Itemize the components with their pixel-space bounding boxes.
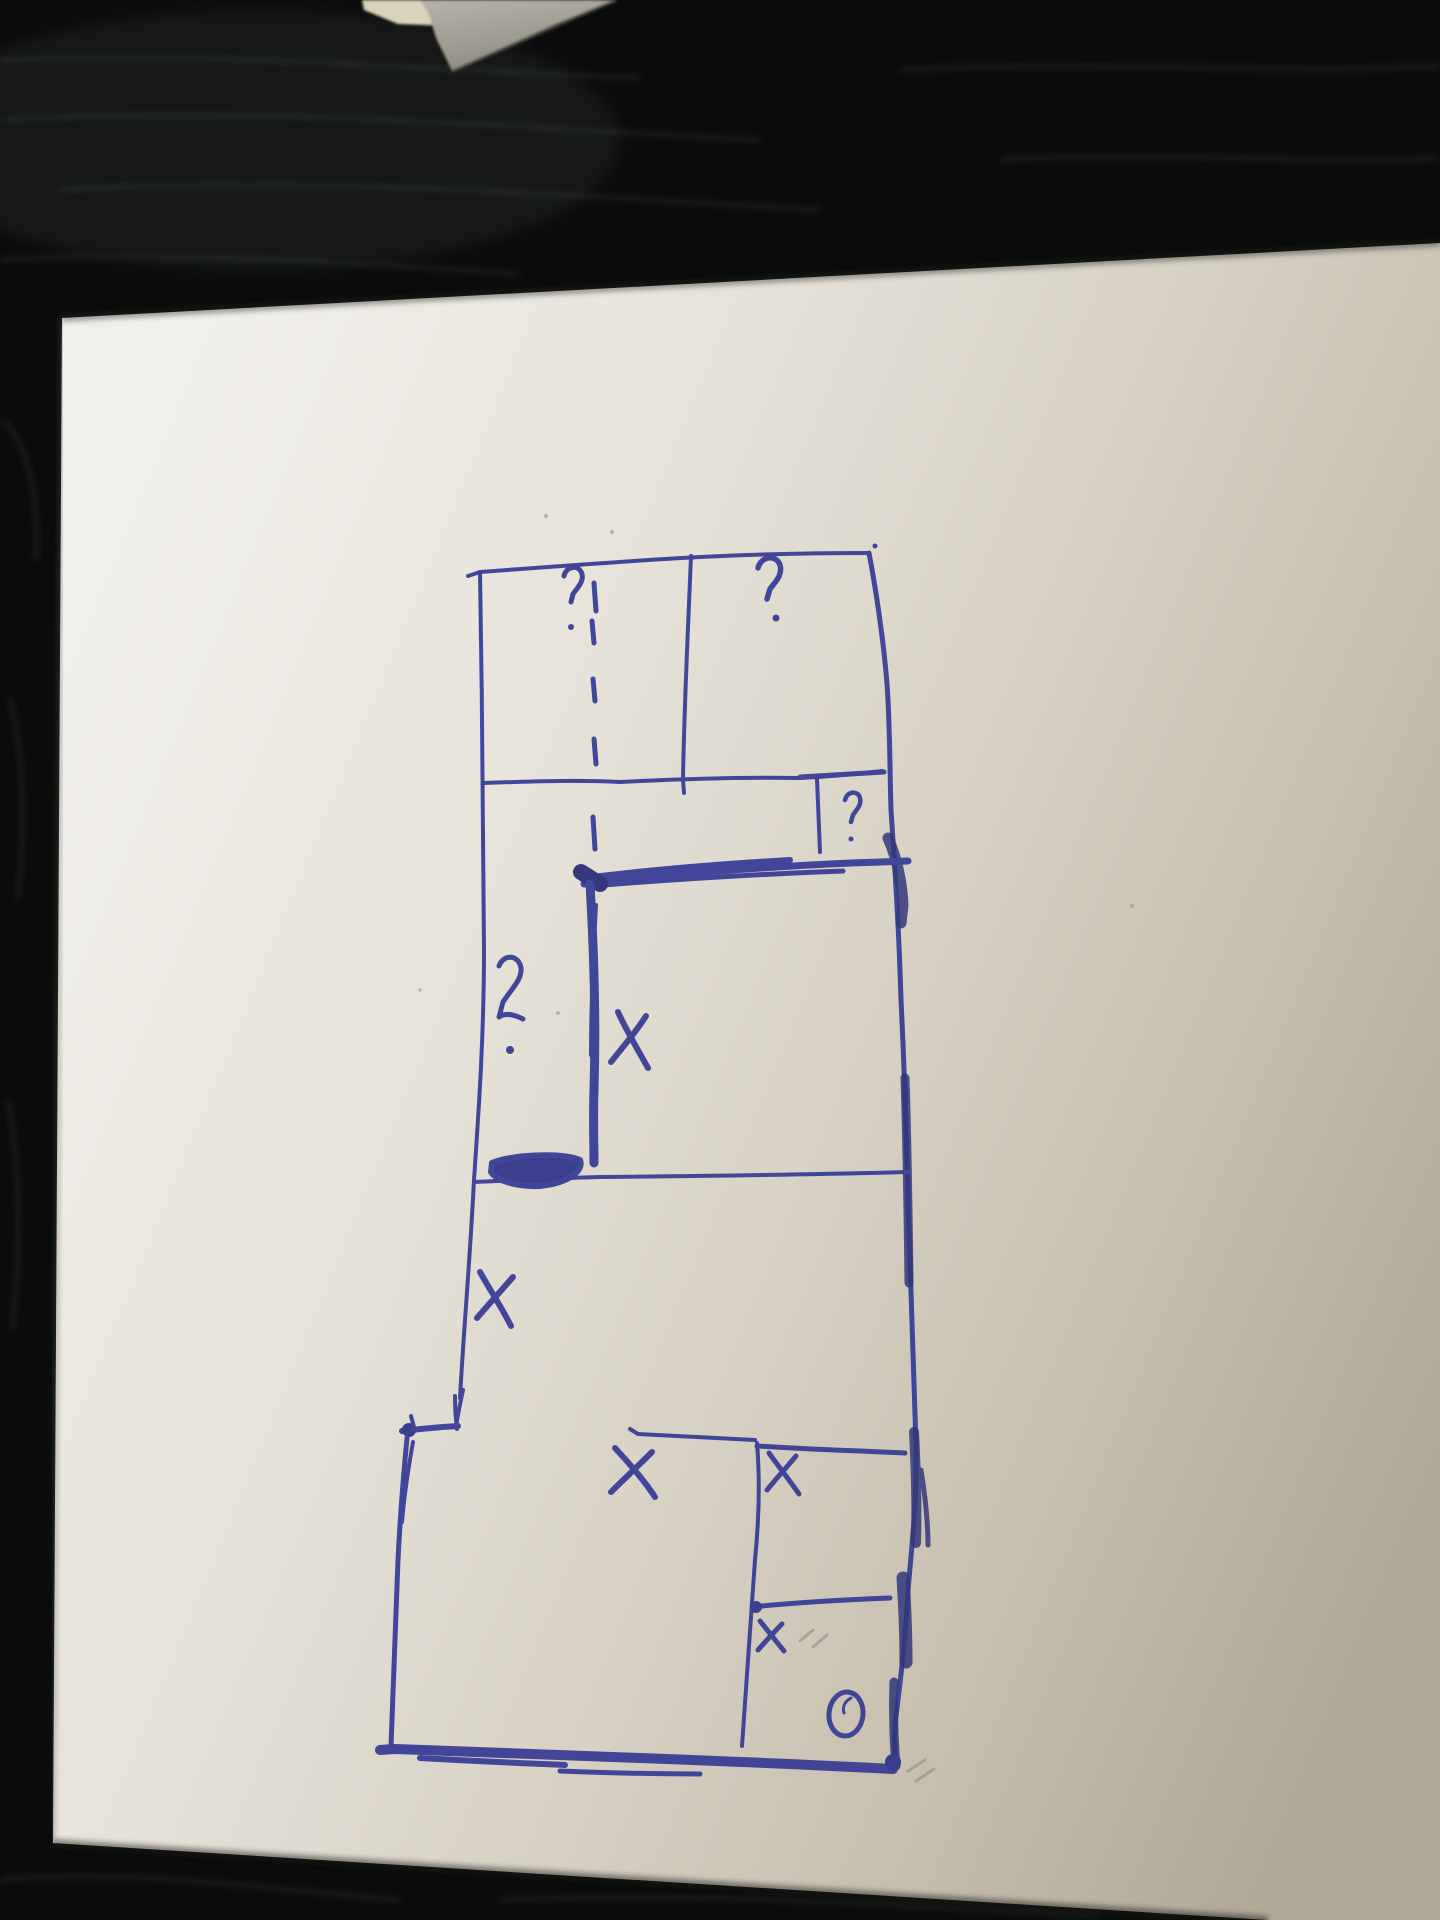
ink-dot (873, 544, 878, 549)
photo-scene (0, 0, 1440, 1920)
middle-room-bottom-blob (491, 1155, 581, 1186)
bottom-right-corner-blob (885, 1754, 901, 1770)
inner-junction-blob (750, 1601, 762, 1613)
